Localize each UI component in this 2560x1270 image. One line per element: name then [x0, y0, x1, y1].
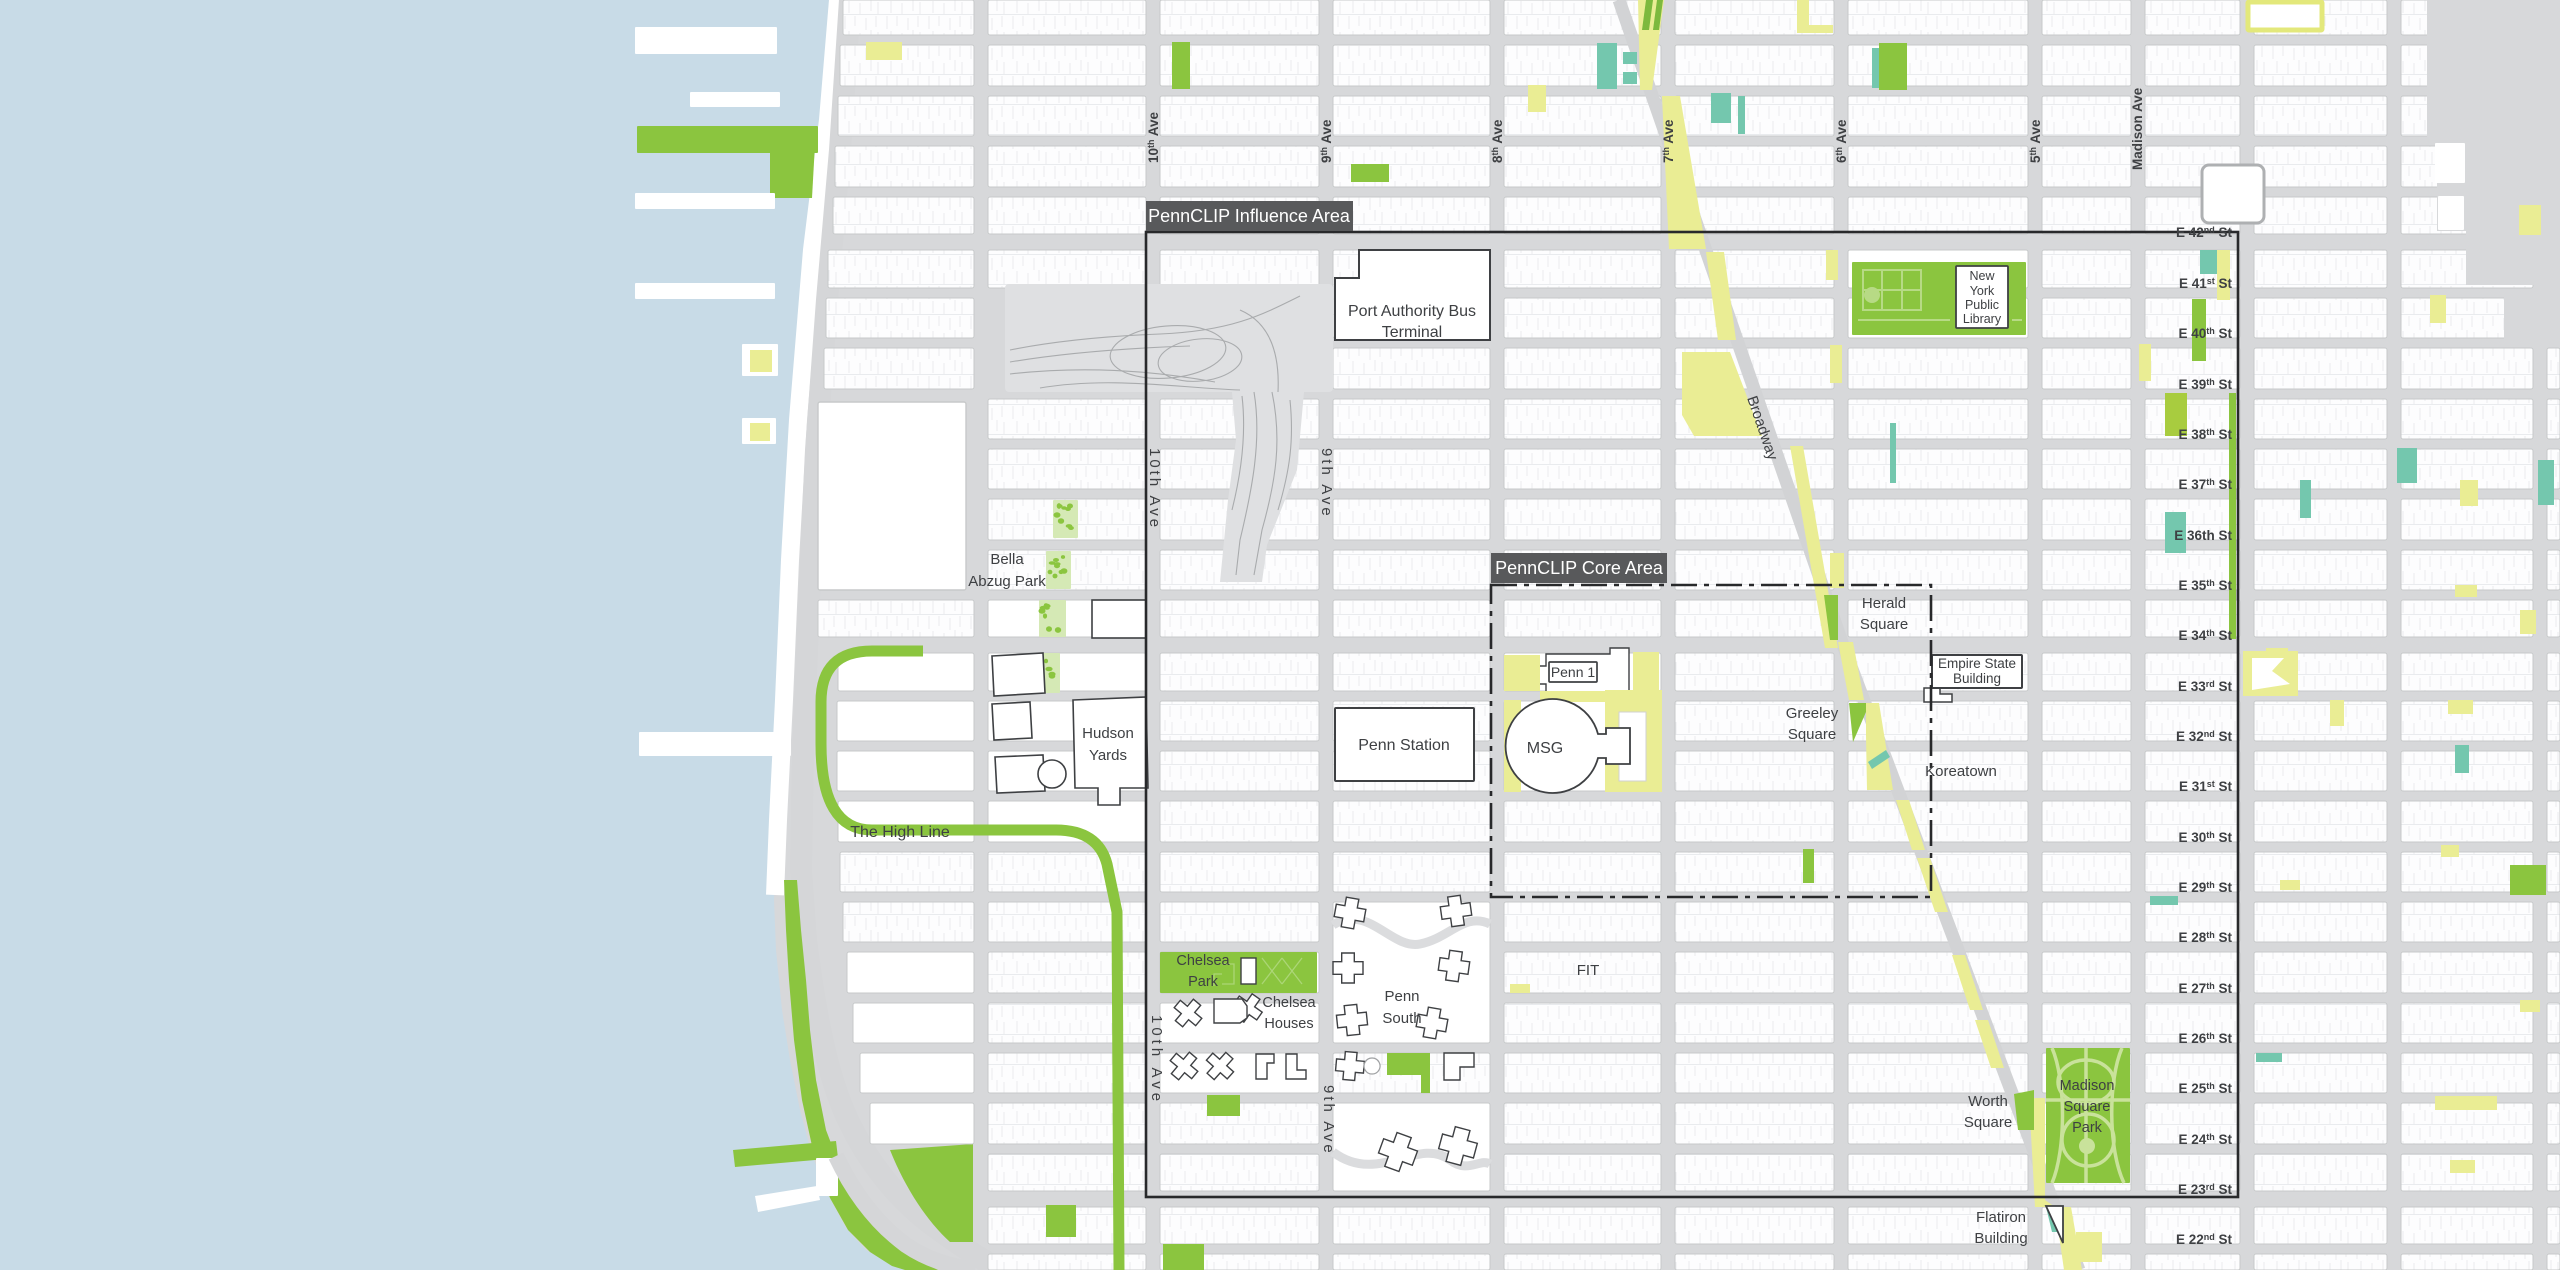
svg-text:Park: Park: [1188, 974, 1219, 990]
svg-text:New: New: [1969, 269, 1995, 283]
svg-text:E 31st St: E 31st St: [2179, 779, 2233, 794]
svg-text:7th Ave: 7th Ave: [1661, 119, 1676, 163]
svg-text:Chelsea: Chelsea: [1176, 953, 1230, 969]
svg-text:Herald: Herald: [1862, 595, 1906, 612]
svg-text:South: South: [1382, 1010, 1421, 1027]
svg-text:York: York: [1970, 284, 1995, 298]
svg-text:10th Ave: 10th Ave: [1146, 448, 1163, 530]
svg-text:Yards: Yards: [1089, 747, 1127, 764]
svg-text:E 26th St: E 26th St: [2178, 1031, 2232, 1046]
svg-text:Bella: Bella: [990, 551, 1024, 568]
svg-text:The High Line: The High Line: [850, 824, 950, 841]
svg-text:Park: Park: [2072, 1120, 2103, 1136]
svg-text:Square: Square: [1788, 726, 1836, 743]
svg-text:Building: Building: [1953, 671, 2001, 686]
svg-text:10th Ave: 10th Ave: [1146, 111, 1161, 163]
svg-text:E 35th St: E 35th St: [2178, 578, 2232, 593]
svg-text:E 37th St: E 37th St: [2178, 477, 2232, 492]
svg-text:E 29th St: E 29th St: [2178, 880, 2232, 895]
svg-text:Madison: Madison: [2060, 1078, 2115, 1094]
svg-text:Chelsea: Chelsea: [1262, 995, 1316, 1011]
svg-text:Square: Square: [2064, 1099, 2111, 1115]
svg-text:8th Ave: 8th Ave: [1490, 119, 1505, 163]
svg-text:E 25th St: E 25th St: [2178, 1081, 2232, 1096]
svg-text:9th Ave: 9th Ave: [1319, 119, 1334, 163]
svg-text:Library: Library: [1963, 312, 2002, 326]
svg-text:E 33rd St: E 33rd St: [2178, 679, 2233, 694]
svg-text:6th Ave: 6th Ave: [1834, 119, 1849, 163]
svg-text:Port Authority Bus: Port Authority Bus: [1348, 303, 1476, 320]
svg-text:5th Ave: 5th Ave: [2028, 119, 2043, 163]
svg-text:Greeley: Greeley: [1786, 705, 1839, 722]
svg-text:E 40th St: E 40th St: [2178, 326, 2232, 341]
svg-text:Square: Square: [1860, 616, 1908, 633]
svg-text:E 38th St: E 38th St: [2178, 427, 2232, 442]
svg-text:Abzug Park: Abzug Park: [968, 573, 1046, 590]
svg-text:Penn Station: Penn Station: [1358, 737, 1450, 754]
svg-text:Penn: Penn: [1384, 988, 1419, 1005]
svg-text:E 30th St: E 30th St: [2178, 830, 2232, 845]
svg-text:Hudson: Hudson: [1082, 725, 1134, 742]
svg-text:PennCLIP Influence Area: PennCLIP Influence Area: [1148, 206, 1351, 226]
svg-text:Public: Public: [1965, 298, 1999, 312]
svg-text:Terminal: Terminal: [1382, 324, 1442, 341]
svg-text:E 36th St: E 36th St: [2174, 528, 2232, 543]
svg-text:9th Ave: 9th Ave: [1320, 1085, 1337, 1156]
svg-text:Square: Square: [1964, 1114, 2012, 1131]
svg-text:E 41st St: E 41st St: [2179, 276, 2233, 291]
svg-text:Flatiron: Flatiron: [1976, 1209, 2026, 1226]
svg-text:E 34th St: E 34th St: [2178, 628, 2232, 643]
svg-text:E 27th St: E 27th St: [2178, 981, 2232, 996]
svg-text:Building: Building: [1974, 1230, 2027, 1247]
svg-text:MSG: MSG: [1527, 740, 1563, 757]
svg-text:E 39th St: E 39th St: [2178, 377, 2232, 392]
svg-text:Worth: Worth: [1968, 1093, 2008, 1110]
svg-text:PennCLIP Core Area: PennCLIP Core Area: [1495, 558, 1664, 578]
svg-text:Penn 1: Penn 1: [1551, 664, 1596, 680]
svg-text:Koreatown: Koreatown: [1925, 763, 1997, 780]
svg-text:Madison Ave: Madison Ave: [2130, 87, 2145, 170]
svg-text:9th Ave: 9th Ave: [1318, 448, 1335, 519]
svg-text:E 24th St: E 24th St: [2178, 1132, 2232, 1147]
svg-text:FIT: FIT: [1577, 962, 1600, 979]
svg-text:Empire State: Empire State: [1938, 656, 2016, 671]
svg-text:Houses: Houses: [1264, 1016, 1313, 1032]
svg-text:E 23rd St: E 23rd St: [2178, 1182, 2233, 1197]
svg-text:10th Ave: 10th Ave: [1148, 1015, 1165, 1105]
svg-text:E 28th St: E 28th St: [2178, 930, 2232, 945]
